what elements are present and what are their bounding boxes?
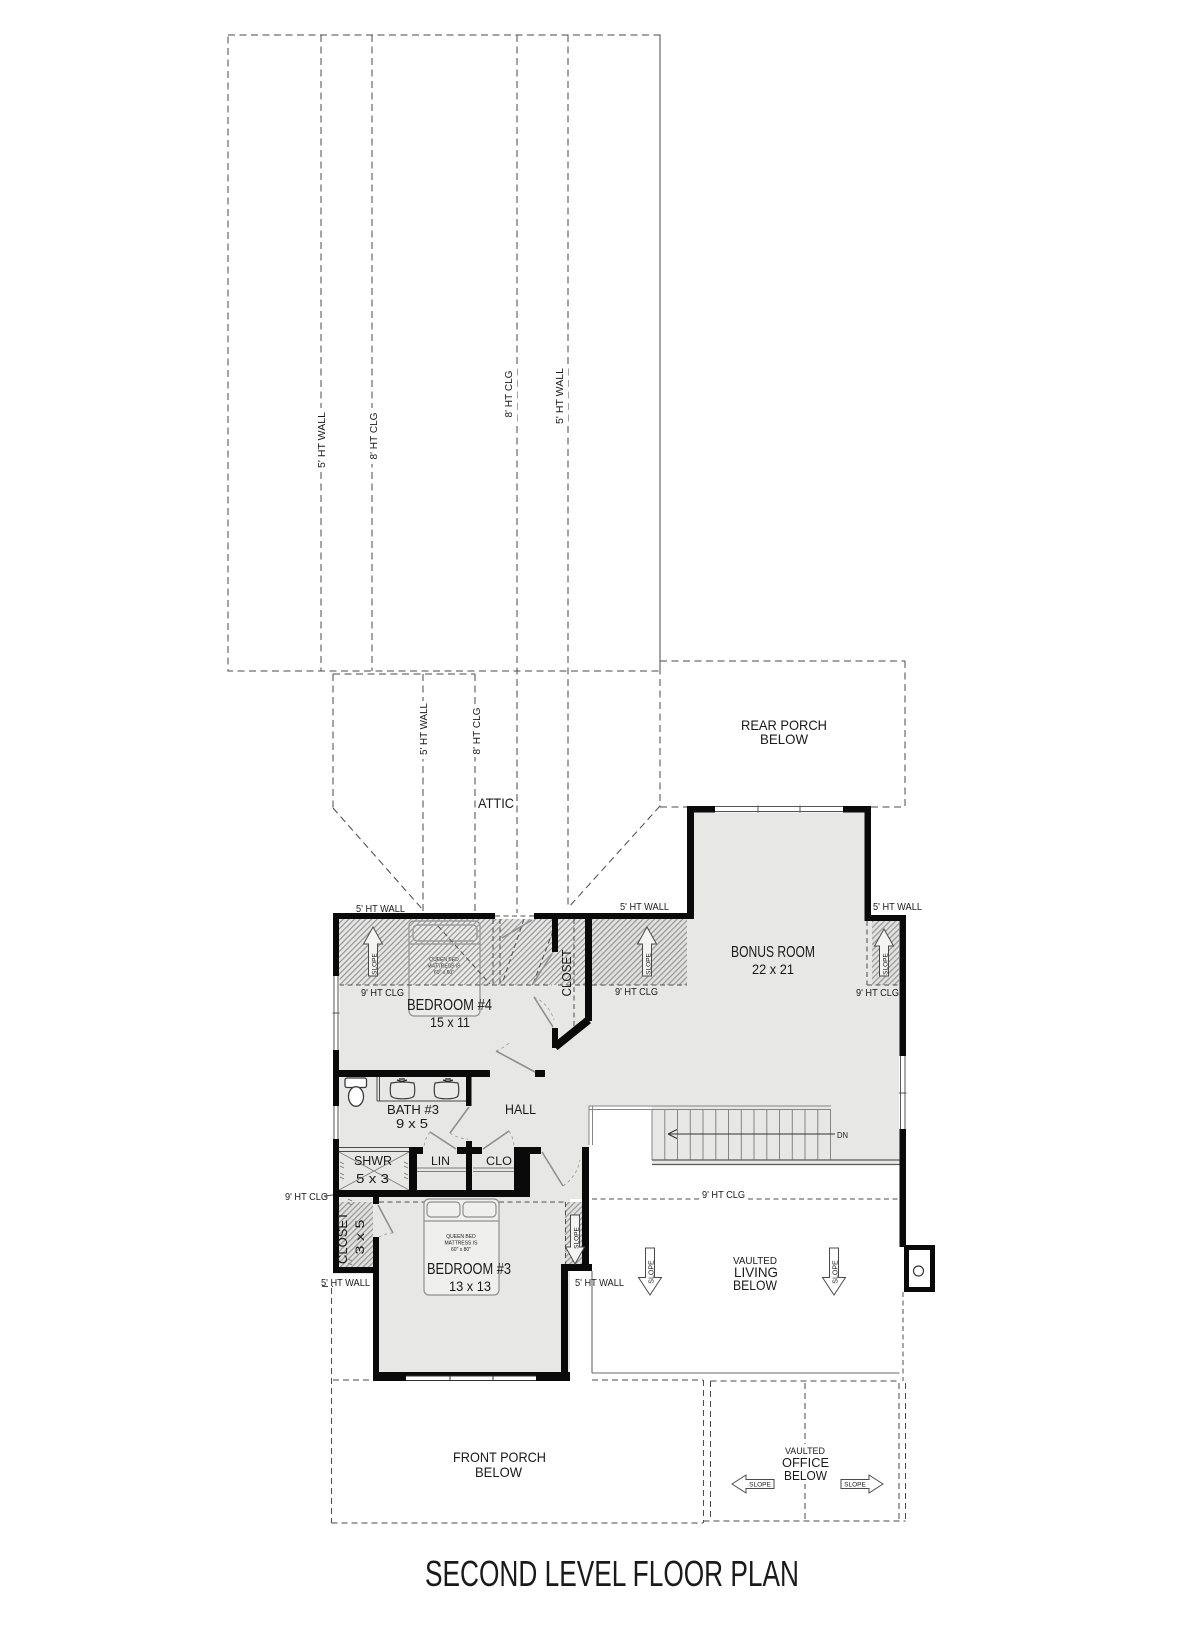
svg-text:9 x 5: 9 x 5 — [396, 1116, 428, 1131]
svg-text:8' HT CLG: 8' HT CLG — [503, 371, 515, 418]
svg-text:SLOPE: SLOPE — [649, 1260, 656, 1284]
svg-text:13 x 13: 13 x 13 — [449, 1278, 491, 1294]
svg-text:BELOW: BELOW — [784, 1468, 828, 1483]
svg-text:9' HT CLG: 9' HT CLG — [361, 987, 404, 999]
svg-text:BEDROOM #4: BEDROOM #4 — [407, 997, 492, 1014]
svg-text:QUEEN BED: QUEEN BED — [446, 1234, 476, 1240]
svg-text:5' HT WALL: 5' HT WALL — [575, 1277, 624, 1289]
svg-text:BELOW: BELOW — [475, 1464, 523, 1480]
svg-text:SLOPE: SLOPE — [749, 1482, 771, 1489]
svg-text:BATH #3: BATH #3 — [387, 1102, 439, 1117]
svg-text:SHWR: SHWR — [354, 1153, 392, 1168]
svg-text:DN: DN — [837, 1130, 848, 1140]
svg-text:9' HT CLG: 9' HT CLG — [856, 987, 899, 999]
svg-text:FRONT PORCH: FRONT PORCH — [453, 1449, 546, 1465]
svg-text:3 x 5: 3 x 5 — [353, 1219, 367, 1254]
svg-text:SLOPE: SLOPE — [574, 1227, 581, 1249]
svg-text:SLOPE: SLOPE — [883, 953, 890, 975]
svg-text:SLOPE: SLOPE — [844, 1482, 866, 1489]
svg-text:MATTRESS IS: MATTRESS IS — [445, 1241, 479, 1247]
svg-text:5' HT WALL: 5' HT WALL — [554, 368, 566, 424]
svg-text:60" x 80": 60" x 80" — [451, 1247, 471, 1253]
svg-text:8' HT CLG: 8' HT CLG — [368, 413, 380, 460]
svg-text:9' HT CLG: 9' HT CLG — [702, 1189, 745, 1201]
svg-text:BONUS ROOM: BONUS ROOM — [731, 944, 815, 961]
svg-text:5' HT WALL: 5' HT WALL — [316, 412, 328, 468]
svg-text:5' HT WALL: 5' HT WALL — [356, 903, 405, 915]
svg-text:CLO: CLO — [486, 1154, 512, 1168]
svg-text:HALL: HALL — [505, 1101, 536, 1117]
svg-text:SLOPE: SLOPE — [646, 953, 653, 975]
svg-text:5' HT WALL: 5' HT WALL — [418, 703, 430, 755]
svg-text:SLOPE: SLOPE — [372, 953, 379, 975]
svg-text:SECOND LEVEL FLOOR PLAN: SECOND LEVEL FLOOR PLAN — [425, 1553, 799, 1594]
svg-text:SLOPE: SLOPE — [833, 1260, 840, 1284]
svg-text:5' HT WALL: 5' HT WALL — [321, 1277, 370, 1289]
svg-text:BEDROOM #3: BEDROOM #3 — [427, 1261, 511, 1278]
svg-text:CLOSET: CLOSET — [559, 949, 574, 996]
svg-text:5' HT WALL: 5' HT WALL — [873, 901, 922, 913]
svg-text:5' HT WALL: 5' HT WALL — [620, 901, 669, 913]
svg-text:LIN: LIN — [431, 1154, 450, 1168]
svg-text:8' HT CLG: 8' HT CLG — [471, 708, 483, 755]
svg-text:BELOW: BELOW — [733, 1277, 778, 1293]
svg-text:22 x 21: 22 x 21 — [752, 961, 794, 977]
svg-text:15 x 11: 15 x 11 — [430, 1014, 470, 1030]
svg-text:ATTIC: ATTIC — [478, 795, 514, 811]
svg-text:9' HT CLG: 9' HT CLG — [615, 986, 658, 998]
svg-text:9' HT CLG: 9' HT CLG — [285, 1191, 328, 1203]
svg-text:BELOW: BELOW — [760, 731, 809, 747]
svg-text:5 x 3: 5 x 3 — [356, 1171, 389, 1186]
svg-text:CLOSET: CLOSET — [335, 1212, 350, 1264]
